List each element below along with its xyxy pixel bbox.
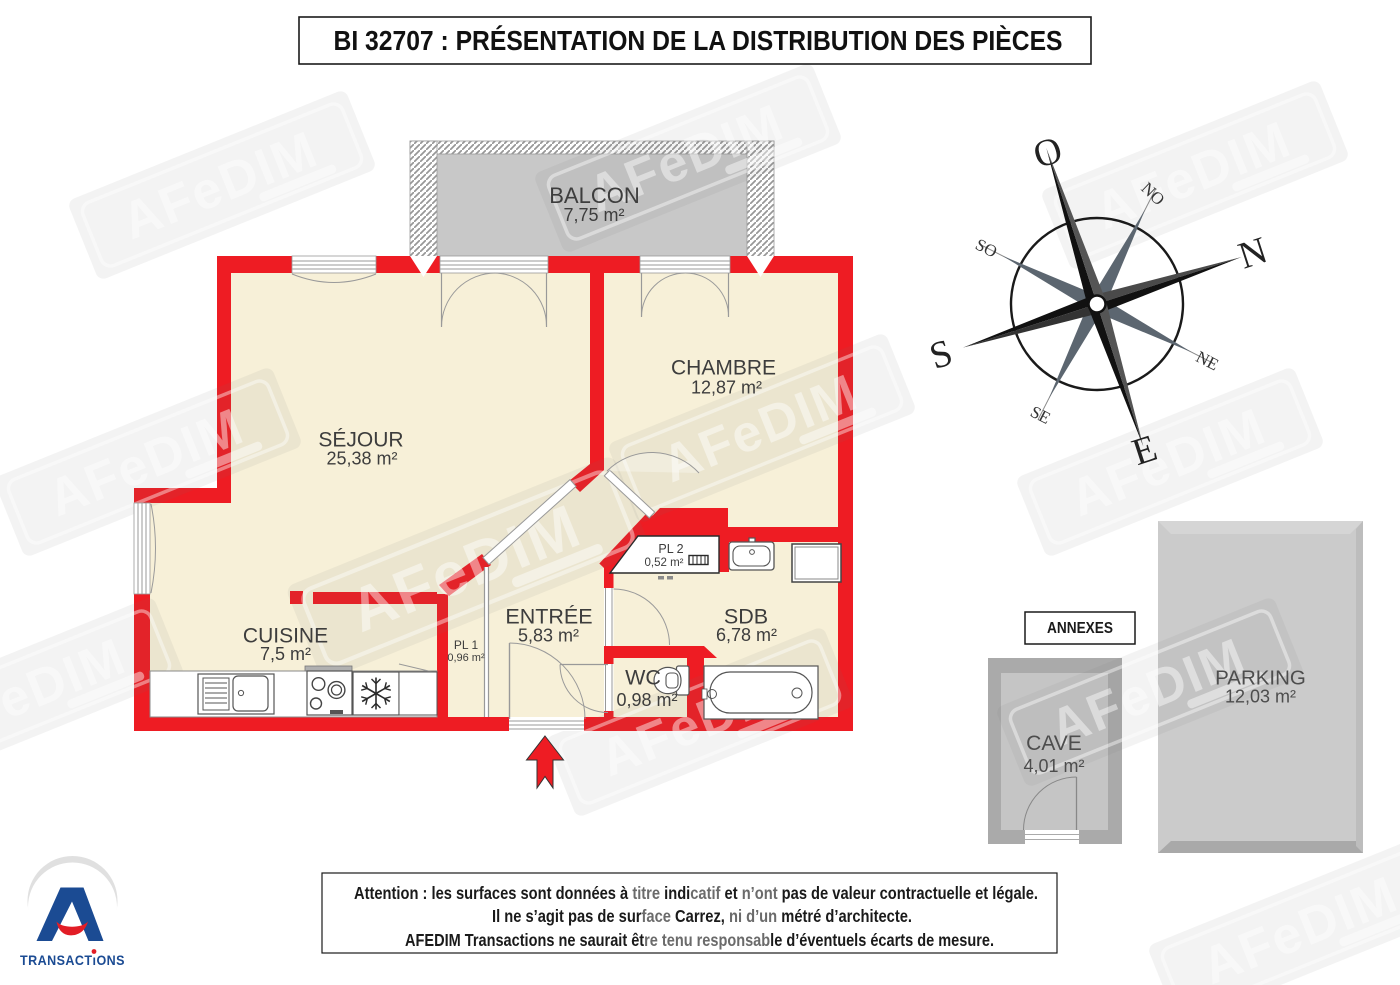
svg-text:Attention : les surfaces sont: Attention : les surfaces sont données à … — [354, 883, 1038, 903]
svg-text:AFEDIM Transactions ne saurait: AFEDIM Transactions ne saurait être tenu… — [405, 930, 994, 950]
svg-text:BI 32707 : PRÉSENTATION DE LA: BI 32707 : PRÉSENTATION DE LA DISTRIBUTI… — [334, 25, 1063, 56]
svg-text:25,38 m²: 25,38 m² — [326, 449, 397, 469]
svg-text:7,75 m²: 7,75 m² — [563, 205, 624, 225]
svg-text:7,5 m²: 7,5 m² — [260, 644, 311, 664]
svg-text:4,01 m²: 4,01 m² — [1023, 756, 1084, 776]
svg-text:12,03 m²: 12,03 m² — [1225, 687, 1296, 707]
svg-text:TRANSACTıONS: TRANSACTıONS — [20, 952, 125, 968]
svg-text:5,83 m²: 5,83 m² — [518, 626, 579, 646]
svg-text:0,52 m²: 0,52 m² — [645, 557, 684, 569]
svg-text:6,78 m²: 6,78 m² — [716, 625, 777, 645]
svg-text:WC: WC — [625, 666, 661, 690]
svg-text:CHAMBRE: CHAMBRE — [671, 357, 776, 380]
svg-text:Il ne s’agit pas de surface Ca: Il ne s’agit pas de surface Carrez, ni d… — [492, 906, 912, 926]
svg-text:PL 2: PL 2 — [658, 542, 683, 556]
svg-text:PL 1: PL 1 — [454, 638, 479, 652]
svg-text:0,98 m²: 0,98 m² — [616, 690, 677, 710]
svg-text:0,96 m²: 0,96 m² — [447, 652, 485, 664]
svg-text:CAVE: CAVE — [1026, 732, 1082, 755]
svg-text:ANNEXES: ANNEXES — [1047, 620, 1113, 637]
svg-text:12,87 m²: 12,87 m² — [691, 378, 762, 398]
